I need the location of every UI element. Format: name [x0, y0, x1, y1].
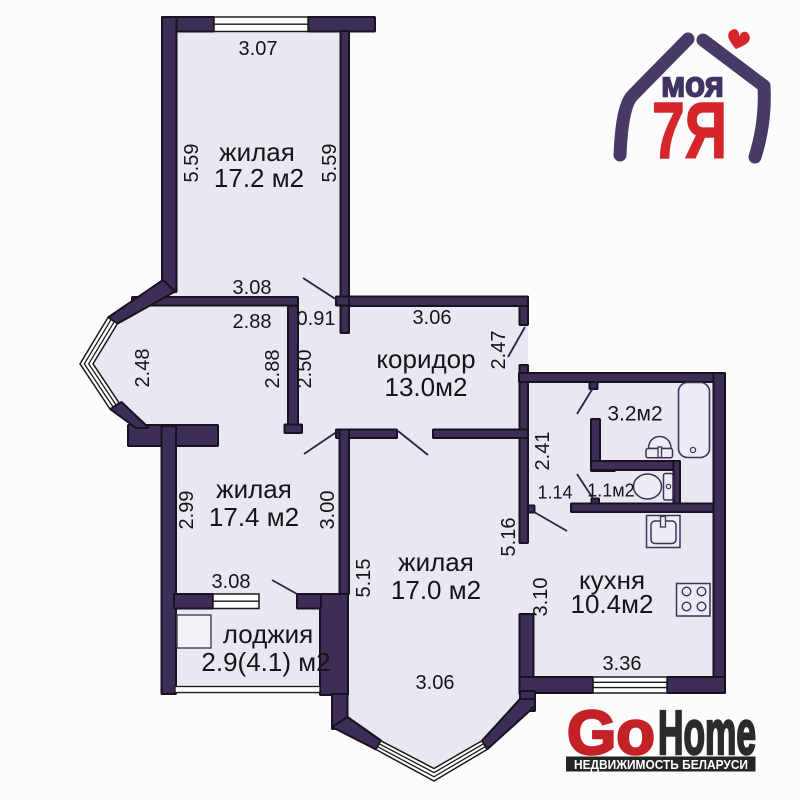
- svg-text:2.88: 2.88: [233, 311, 272, 333]
- svg-text:0.91: 0.91: [297, 308, 336, 330]
- svg-text:1.14: 1.14: [537, 482, 572, 502]
- svg-text:2.47: 2.47: [488, 331, 510, 370]
- svg-text:3.36: 3.36: [603, 653, 642, 675]
- svg-text:3.10: 3.10: [530, 578, 552, 617]
- svg-text:5.59: 5.59: [319, 144, 341, 183]
- svg-text:2.50: 2.50: [294, 350, 316, 389]
- svg-text:3.06: 3.06: [413, 307, 452, 329]
- svg-text:3.2м2: 3.2м2: [607, 402, 662, 425]
- svg-text:3.00: 3.00: [317, 491, 339, 530]
- svg-text:3.08: 3.08: [233, 277, 272, 299]
- svg-text:2.48: 2.48: [132, 349, 154, 388]
- svg-text:5.59: 5.59: [181, 144, 203, 183]
- svg-text:НЕДВИЖИМОСТЬ БЕЛАРУСИ: НЕДВИЖИМОСТЬ БЕЛАРУСИ: [574, 758, 748, 772]
- svg-text:коридор: коридор: [376, 344, 475, 374]
- svg-text:лоджия: лоджия: [223, 619, 314, 649]
- svg-text:2.41: 2.41: [532, 432, 554, 471]
- svg-text:17.4 м2: 17.4 м2: [209, 502, 299, 532]
- svg-text:1.1м2: 1.1м2: [587, 480, 634, 500]
- svg-text:3.06: 3.06: [416, 672, 455, 694]
- svg-text:10.4м2: 10.4м2: [571, 589, 654, 619]
- svg-text:17.2 м2: 17.2 м2: [214, 163, 304, 193]
- svg-text:2.88: 2.88: [262, 350, 284, 389]
- svg-text:7Я: 7Я: [652, 86, 727, 175]
- svg-text:5.15: 5.15: [353, 559, 375, 598]
- svg-text:5.16: 5.16: [498, 518, 520, 557]
- svg-text:жилая: жилая: [216, 474, 292, 504]
- svg-text:3.07: 3.07: [239, 38, 278, 60]
- svg-text:2.99: 2.99: [176, 491, 198, 530]
- svg-text:13.0м2: 13.0м2: [385, 372, 468, 402]
- svg-text:жилая: жилая: [398, 547, 474, 577]
- svg-text:2.9(4.1) м2: 2.9(4.1) м2: [201, 647, 330, 677]
- svg-text:17.0 м2: 17.0 м2: [391, 575, 481, 605]
- svg-text:3.08: 3.08: [212, 571, 251, 593]
